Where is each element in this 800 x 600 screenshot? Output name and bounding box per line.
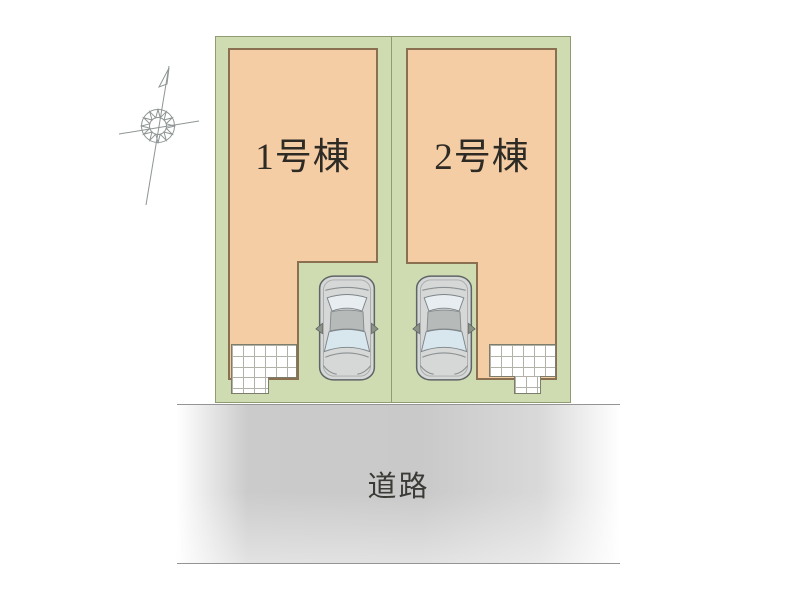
entrance-tile-grid-1-step (231, 377, 269, 394)
road-label: 道路 (367, 463, 429, 505)
car-2-top-view-icon (411, 270, 477, 386)
entrance-tile-grid-1 (231, 344, 297, 378)
entrance-tile-grid-2 (489, 344, 556, 377)
compass-north-icon (105, 50, 215, 220)
building-2-label: 2号棟 (407, 136, 557, 180)
site-plan-canvas: 1号棟 2号棟 道路 (0, 0, 800, 600)
entrance-tile-grid-2-step (514, 376, 541, 394)
road-area: 道路 (177, 404, 620, 564)
building-1-label: 1号棟 (229, 136, 377, 180)
car-1-top-view-icon (314, 270, 380, 386)
